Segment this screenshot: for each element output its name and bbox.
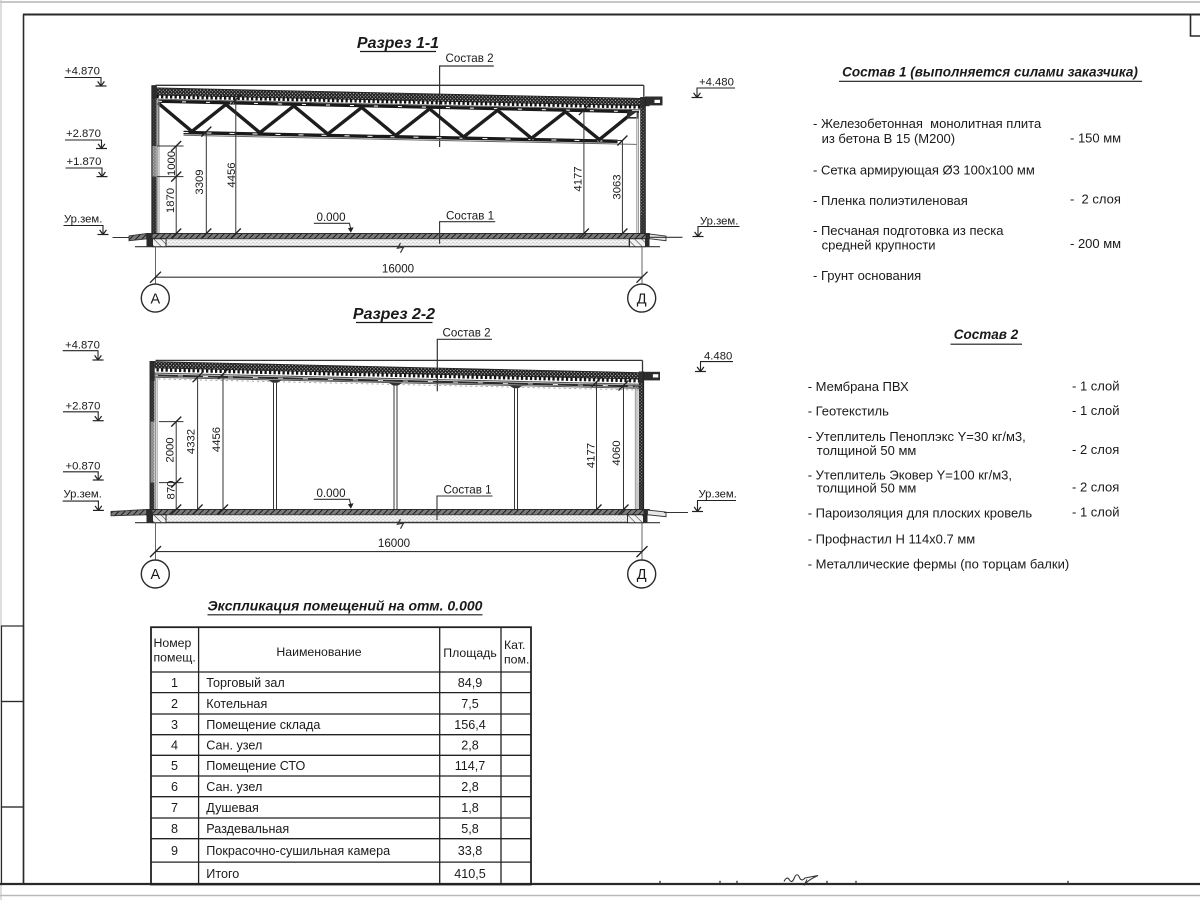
svg-text:Помещение СТО: Помещение СТО: [206, 759, 305, 773]
svg-text:5: 5: [171, 759, 178, 773]
svg-text:+4.870: +4.870: [65, 340, 100, 352]
svg-text:Покрасочно-сушильная камера: Покрасочно-сушильная камера: [206, 844, 390, 858]
svg-text:Экспликация помещений на отм.: Экспликация помещений на отм. 0.000: [208, 598, 483, 614]
svg-text:6: 6: [171, 780, 178, 794]
svg-text:- Пароизоляция для плоских кро: - Пароизоляция для плоских кровель: [808, 506, 1033, 521]
svg-text:Сан. узел: Сан. узел: [206, 739, 262, 753]
svg-text:1870: 1870: [165, 188, 177, 213]
svg-text:5,8: 5,8: [461, 822, 479, 836]
svg-text:Д: Д: [637, 291, 647, 307]
svg-text:8: 8: [171, 822, 178, 836]
svg-text:Состав 2: Состав 2: [443, 326, 491, 339]
svg-text:Состав 2: Состав 2: [446, 52, 494, 65]
svg-text:4456: 4456: [226, 162, 238, 187]
svg-text:- 200 мм: - 200 мм: [1070, 236, 1121, 251]
svg-text:4: 4: [171, 739, 178, 753]
svg-text:пом.: пом.: [504, 653, 529, 667]
svg-text:16000: 16000: [382, 263, 414, 276]
svg-text:- 2 слоя: - 2 слоя: [1070, 192, 1121, 207]
svg-text:33,8: 33,8: [458, 844, 483, 858]
svg-text:Кат.: Кат.: [504, 638, 525, 652]
svg-text:Наименование: Наименование: [276, 645, 361, 659]
svg-text:толщиной 50 мм: толщиной 50 мм: [817, 481, 917, 496]
svg-text:Состав 2: Состав 2: [954, 327, 1019, 342]
svg-text:+4.870: +4.870: [65, 66, 100, 78]
svg-text:4332: 4332: [186, 429, 198, 454]
svg-text:Раздевальная: Раздевальная: [206, 822, 289, 836]
svg-text:4177: 4177: [586, 443, 598, 468]
svg-text:Ур.зем.: Ур.зем.: [64, 489, 102, 501]
svg-text:Сан. узел: Сан. узел: [206, 780, 262, 794]
svg-text:+0.870: +0.870: [66, 461, 101, 473]
svg-text:- 2 слоя: - 2 слоя: [1072, 442, 1119, 457]
svg-text:толщиной 50 мм: толщиной 50 мм: [817, 443, 917, 458]
svg-text:Состав 1: Состав 1: [446, 209, 494, 222]
svg-text:4.480: 4.480: [704, 351, 732, 363]
svg-text:- Металлические фермы (по торц: - Металлические фермы (по торцам балки): [808, 557, 1069, 572]
svg-text:2: 2: [171, 697, 178, 711]
svg-text:- Мембрана ПВХ: - Мембрана ПВХ: [808, 379, 909, 394]
svg-text:средней крупности: средней крупности: [822, 238, 936, 253]
svg-text:4177: 4177: [573, 166, 585, 191]
svg-text:Площадь: Площадь: [443, 646, 497, 660]
svg-text:- Песчаная подготовка из песка: - Песчаная подготовка из песка: [813, 223, 1004, 238]
svg-text:- 1 слой: - 1 слой: [1072, 403, 1120, 418]
svg-text:Котельная: Котельная: [206, 697, 267, 711]
svg-text:Помещение склада: Помещение склада: [206, 718, 320, 732]
svg-text:16000: 16000: [378, 537, 410, 550]
svg-text:А: А: [150, 567, 160, 583]
svg-text:9: 9: [171, 844, 178, 858]
svg-text:- 1 слой: - 1 слой: [1072, 379, 1120, 394]
svg-text:+2.870: +2.870: [66, 401, 101, 413]
svg-text:+2.870: +2.870: [66, 128, 101, 140]
svg-text:- Сетка армирующая Ø3 100х100: - Сетка армирующая Ø3 100х100 мм: [813, 163, 1035, 178]
svg-text:- Утеплитель Пеноплэкс Y=30 кг: - Утеплитель Пеноплэкс Y=30 кг/м3,: [808, 429, 1026, 444]
svg-text:- Профнастил Н 114х0.7 мм: - Профнастил Н 114х0.7 мм: [808, 532, 976, 547]
svg-text:+4.480: +4.480: [699, 77, 734, 89]
svg-text:84,9: 84,9: [458, 676, 483, 690]
svg-text:2000: 2000: [165, 437, 177, 462]
svg-text:Итого: Итого: [206, 867, 239, 881]
svg-text:Номер: Номер: [154, 636, 192, 650]
svg-text:помещ.: помещ.: [154, 651, 196, 665]
svg-text:7,5: 7,5: [461, 697, 479, 711]
svg-text:из бетона В 15 (М200): из бетона В 15 (М200): [822, 131, 956, 146]
svg-text:3063: 3063: [612, 174, 624, 199]
svg-text:- Железобетонная монолитная п: - Железобетонная монолитная плита: [813, 116, 1042, 131]
svg-text:- Пленка полиэтиленовая: - Пленка полиэтиленовая: [813, 193, 968, 208]
svg-text:Ур.зем.: Ур.зем.: [700, 216, 738, 228]
svg-text:0.000: 0.000: [317, 487, 346, 500]
svg-text:Ур.зем.: Ур.зем.: [64, 214, 102, 226]
svg-text:Д: Д: [637, 567, 647, 583]
svg-text:Состав 1: Состав 1: [444, 483, 492, 496]
svg-text:3309: 3309: [194, 169, 206, 194]
svg-text:0.000: 0.000: [317, 211, 346, 224]
svg-text:1000: 1000: [166, 151, 178, 176]
svg-text:2,8: 2,8: [461, 780, 479, 794]
svg-text:7: 7: [171, 801, 178, 815]
svg-text:Душевая: Душевая: [206, 801, 259, 815]
svg-text:3: 3: [171, 718, 178, 732]
svg-text:А: А: [150, 291, 160, 307]
svg-text:Торговый зал: Торговый зал: [206, 676, 284, 690]
svg-text:- 1 слой: - 1 слой: [1072, 505, 1120, 520]
svg-text:1: 1: [171, 676, 178, 690]
svg-text:4456: 4456: [211, 427, 223, 452]
svg-text:Разрез 2-2: Разрез 2-2: [353, 306, 435, 323]
svg-text:410,5: 410,5: [454, 867, 486, 881]
svg-text:870: 870: [166, 481, 178, 500]
svg-text:- 2 слоя: - 2 слоя: [1072, 480, 1119, 495]
svg-text:+1.870: +1.870: [67, 156, 102, 168]
svg-text:1,8: 1,8: [461, 801, 479, 815]
svg-text:2,8: 2,8: [461, 739, 479, 753]
svg-text:- Геотекстиль: - Геотекстиль: [808, 404, 889, 419]
svg-text:Ур.зем.: Ур.зем.: [699, 489, 737, 501]
svg-text:156,4: 156,4: [454, 718, 486, 732]
svg-text:Разрез 1-1: Разрез 1-1: [357, 35, 439, 52]
svg-text:Состав 1 (выполняется силами з: Состав 1 (выполняется силами заказчика): [842, 65, 1138, 80]
svg-text:- Грунт основания: - Грунт основания: [813, 268, 921, 283]
svg-text:114,7: 114,7: [455, 759, 486, 773]
svg-text:- 150 мм: - 150 мм: [1070, 131, 1121, 146]
svg-text:4060: 4060: [611, 440, 623, 465]
